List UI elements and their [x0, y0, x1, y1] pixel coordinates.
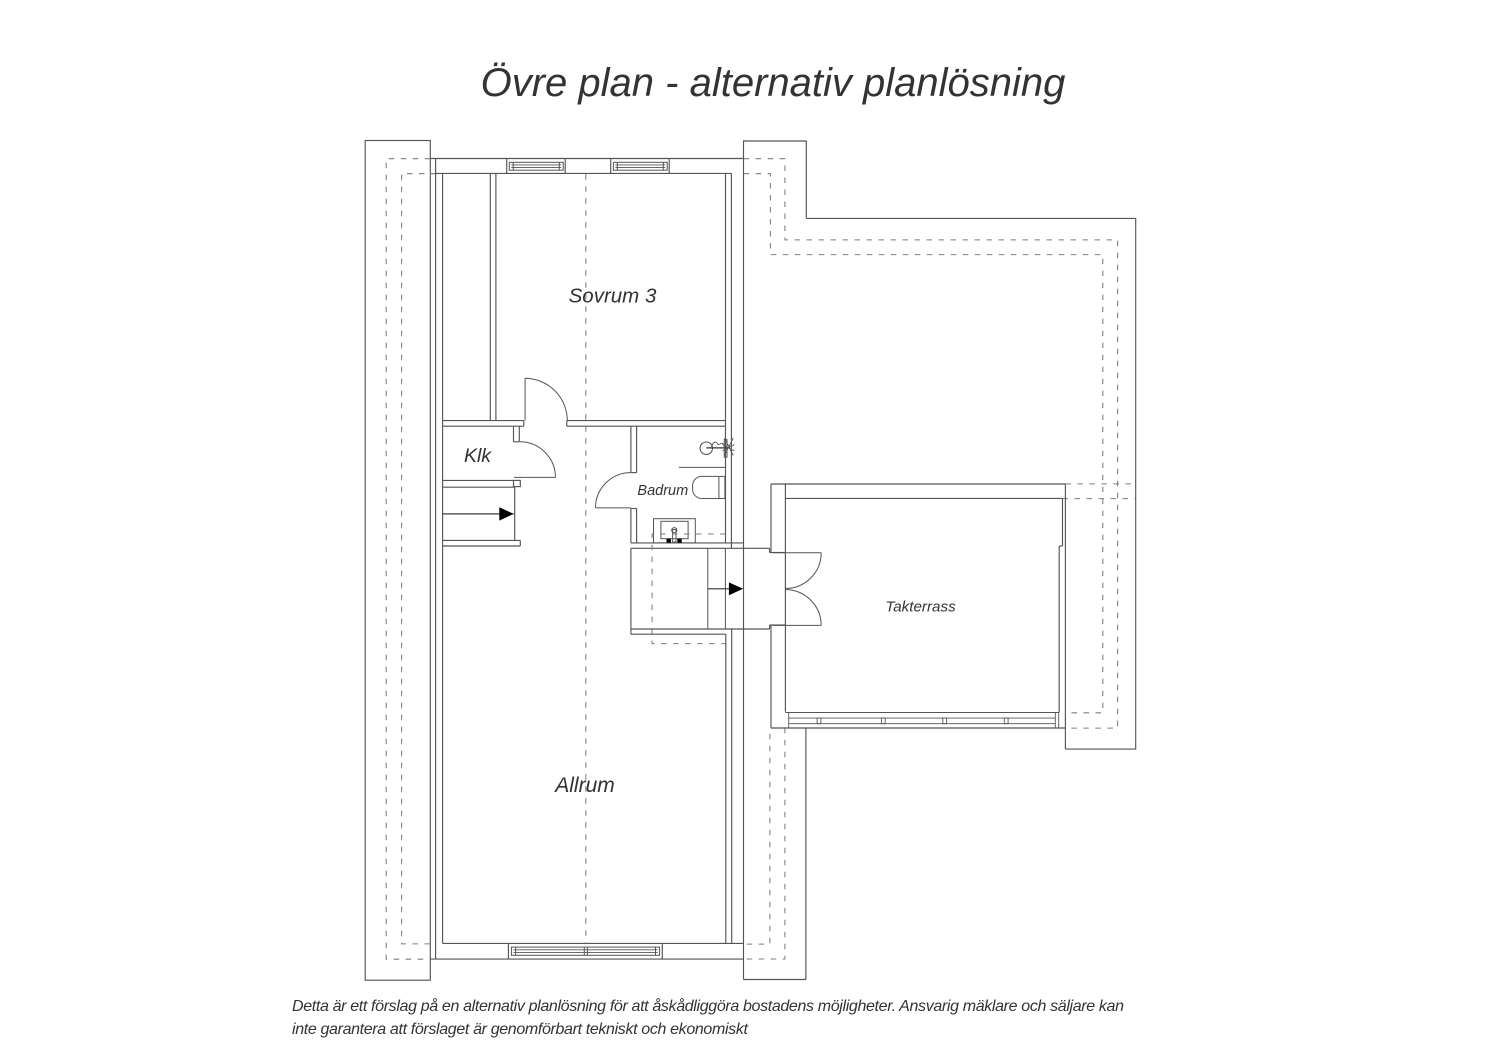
svg-text:Klk: Klk	[464, 445, 492, 467]
svg-text:inte garantera att förslaget ä: inte garantera att förslaget är genomför…	[292, 1021, 748, 1038]
svg-text:Detta är ett förslag på en alt: Detta är ett förslag på en alternativ pl…	[292, 997, 1124, 1015]
svg-text:Badrum: Badrum	[637, 483, 688, 499]
svg-text:Övre plan - alternativ planlös: Övre plan - alternativ planlösning	[481, 61, 1066, 105]
svg-text:Allrum: Allrum	[553, 774, 615, 797]
svg-text:Sovrum 3: Sovrum 3	[569, 285, 657, 308]
svg-text:Takterrass: Takterrass	[885, 599, 956, 616]
